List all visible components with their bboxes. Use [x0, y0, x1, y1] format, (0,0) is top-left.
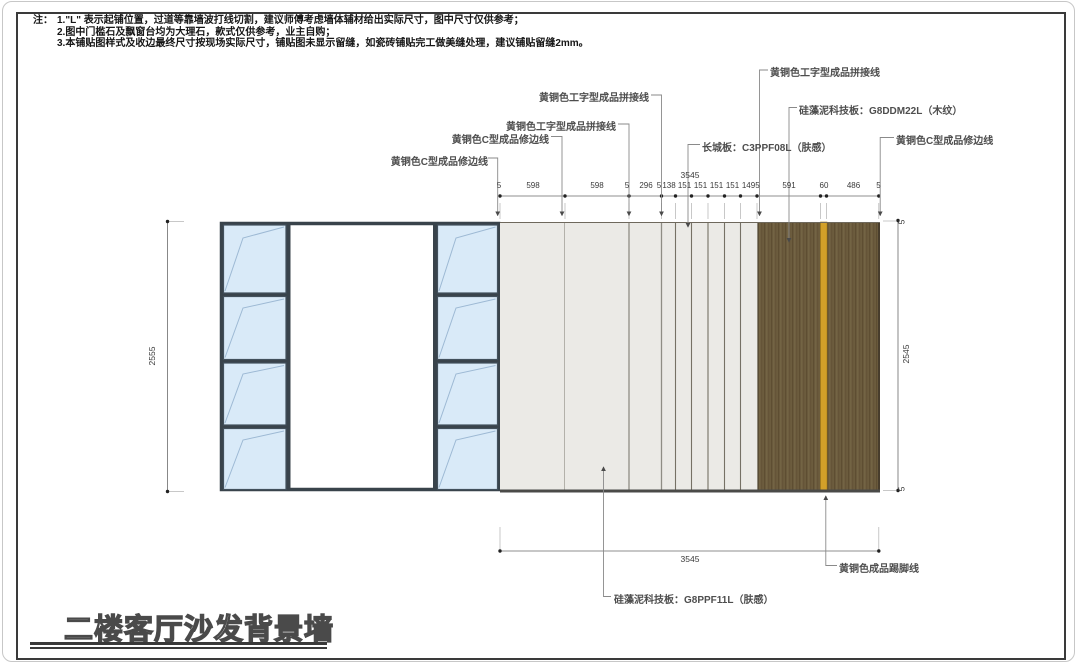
wood-panel: [758, 222, 880, 491]
callout-i-joint-right: 黄铜色工字型成品拼接线: [770, 64, 880, 79]
dim-segment: 591: [782, 181, 795, 190]
leader-c-edge-mid: [551, 137, 562, 216]
dim-segment: 151: [710, 181, 723, 190]
callout-diatom-skin: 硅藻泥科技板：G8PPF11L（肤感）: [614, 591, 773, 606]
dim-segment: 149: [742, 181, 755, 190]
callout-diatom-wood: 硅藻泥科技板：G8DDM22L（木纹）: [799, 102, 962, 117]
dim-segment: 5: [497, 181, 501, 190]
left-height-dimension: 2555: [147, 336, 157, 376]
dim-segment: 598: [526, 181, 539, 190]
right-top-seg-dimension: 5: [896, 220, 906, 225]
dim-segment: 151: [726, 181, 739, 190]
left-dimension: [166, 220, 184, 493]
leader-c-edge-right: [880, 138, 894, 216]
right-bottom-seg-dimension: 5: [896, 487, 906, 492]
dim-segment: 486: [847, 181, 860, 190]
brass-strip: [821, 222, 828, 490]
window-mullion-left: [286, 222, 291, 491]
bottom-dimension: [498, 527, 880, 553]
dim-segment: 296: [639, 181, 652, 190]
top-dimension: [498, 194, 880, 219]
glass-panes-right: [438, 225, 498, 490]
right-dimension: [883, 219, 900, 492]
gray-panel-field: [500, 222, 758, 491]
dim-segment: 5: [625, 181, 629, 190]
window-mullion-right: [433, 222, 438, 491]
dim-segment: 598: [590, 181, 603, 190]
leader-diatom-wood: [789, 108, 797, 243]
leader-skirting: [826, 496, 837, 566]
callout-skirting: 黄铜色成品踢脚线: [839, 560, 919, 575]
leader-i-joint-left: [651, 95, 662, 216]
leader-i-joint-mid: [618, 124, 629, 216]
callout-great-wall-board: 长城板：C3PPF08L（肤感）: [702, 139, 831, 154]
dim-segment: 151: [694, 181, 707, 190]
dim-segment: 5: [657, 181, 661, 190]
extension-lines: [500, 203, 879, 219]
wall-bottom-edge: [500, 490, 880, 493]
callout-c-edge-right: 黄铜色C型成品修边线: [896, 132, 993, 147]
bottom-total-dimension: 3545: [681, 554, 700, 564]
callout-c-edge-left: 黄铜色C型成品修边线: [378, 153, 488, 168]
top-total-dimension: 3545: [681, 170, 700, 180]
dim-segment: 151: [678, 181, 691, 190]
title-underline: [30, 642, 327, 645]
window-unit: [220, 222, 500, 491]
dim-segment: 138: [662, 181, 675, 190]
title-underline: [30, 647, 327, 649]
dim-segment: 5: [755, 181, 759, 190]
drawing-sheet: 注： 1."L" 表示起铺位置，过道等靠墙波打线切割，建议师傅考虑墙体辅材给出实…: [0, 0, 1080, 664]
dim-segment: 60: [820, 181, 829, 190]
callout-c-edge-mid: 黄铜色C型成品修边线: [439, 131, 549, 146]
dim-segment: 5: [876, 181, 880, 190]
callout-i-joint-left: 黄铜色工字型成品拼接线: [529, 89, 649, 104]
glass-panes-left: [224, 225, 287, 490]
right-height-dimension: 2545: [901, 334, 911, 374]
callout-i-joint-mid: 黄铜色工字型成品拼接线: [496, 118, 616, 133]
